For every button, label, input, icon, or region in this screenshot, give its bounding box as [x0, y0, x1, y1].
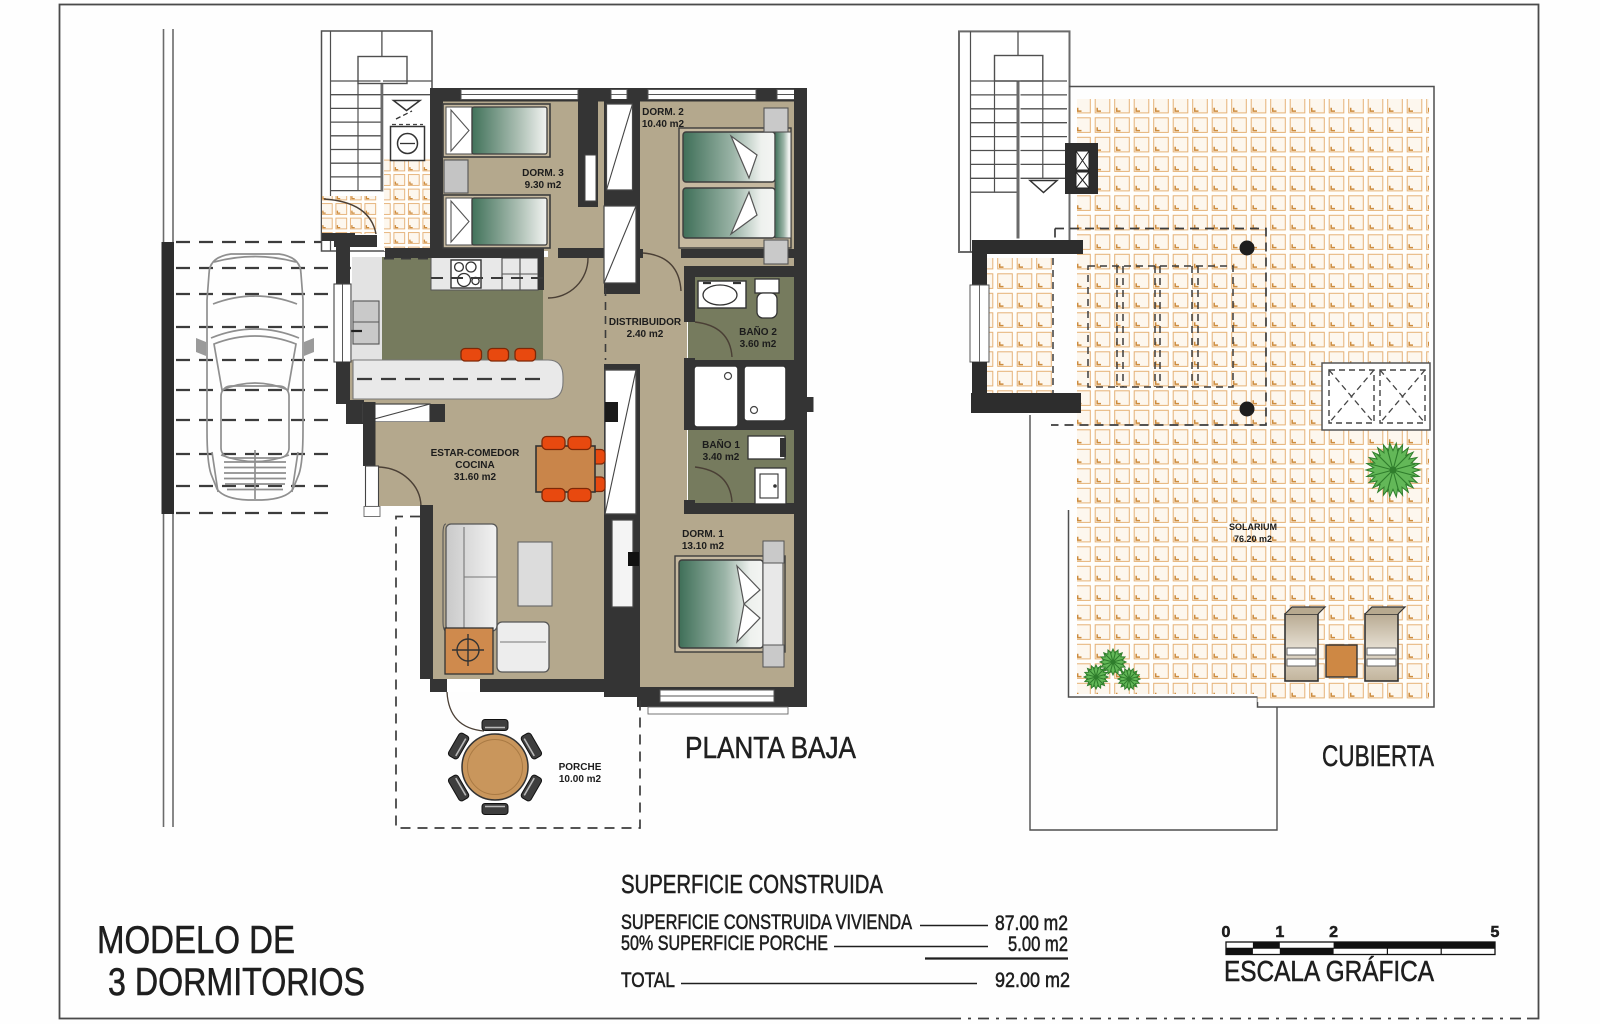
- svg-text:DISTRIBUIDOR: DISTRIBUIDOR: [609, 317, 682, 328]
- svg-text:2.40 m2: 2.40 m2: [627, 329, 664, 340]
- svg-text:PLANTA BAJA: PLANTA BAJA: [685, 730, 856, 765]
- svg-text:SOLARIUM: SOLARIUM: [1229, 522, 1277, 532]
- svg-text:13.10 m2: 13.10 m2: [682, 541, 725, 552]
- svg-text:ESCALA GRÁFICA: ESCALA GRÁFICA: [1224, 955, 1435, 988]
- svg-text:COCINA: COCINA: [455, 460, 494, 471]
- svg-text:10.00 m2: 10.00 m2: [559, 774, 602, 785]
- svg-text:50% SUPERFICIE PORCHE: 50% SUPERFICIE PORCHE: [621, 932, 828, 955]
- svg-text:CUBIERTA: CUBIERTA: [1322, 740, 1434, 773]
- svg-text:MODELO DE: MODELO DE: [97, 919, 295, 962]
- svg-text:BAÑO 2: BAÑO 2: [739, 325, 777, 338]
- svg-text:DORM. 2: DORM. 2: [642, 107, 684, 118]
- svg-text:5: 5: [1491, 924, 1500, 941]
- svg-text:1: 1: [1275, 924, 1284, 941]
- svg-text:5.00 m2: 5.00 m2: [1008, 933, 1068, 956]
- svg-text:3.60 m2: 3.60 m2: [740, 339, 777, 350]
- svg-text:92.00 m2: 92.00 m2: [995, 969, 1070, 992]
- svg-text:3.40 m2: 3.40 m2: [703, 452, 740, 463]
- svg-text:SUPERFICIE CONSTRUIDA VIVIENDA: SUPERFICIE CONSTRUIDA VIVIENDA: [621, 911, 912, 934]
- svg-text:9.30 m2: 9.30 m2: [525, 180, 562, 191]
- svg-text:3 DORMITORIOS: 3 DORMITORIOS: [108, 961, 365, 1004]
- svg-text:2: 2: [1329, 924, 1338, 941]
- svg-text:TOTAL: TOTAL: [621, 969, 675, 992]
- svg-text:0: 0: [1222, 924, 1231, 941]
- svg-text:ESTAR-COMEDOR: ESTAR-COMEDOR: [431, 448, 520, 459]
- svg-text:87.00 m2: 87.00 m2: [995, 912, 1068, 935]
- svg-text:31.60 m2: 31.60 m2: [454, 472, 497, 483]
- svg-text:10.40 m2: 10.40 m2: [642, 119, 685, 130]
- svg-text:DORM. 1: DORM. 1: [682, 529, 724, 540]
- svg-text:76.20 m2: 76.20 m2: [1234, 534, 1272, 544]
- svg-text:SUPERFICIE CONSTRUIDA: SUPERFICIE CONSTRUIDA: [621, 869, 884, 899]
- svg-text:PORCHE: PORCHE: [559, 762, 602, 773]
- svg-text:DORM. 3: DORM. 3: [522, 168, 564, 179]
- svg-text:BAÑO 1: BAÑO 1: [702, 438, 740, 451]
